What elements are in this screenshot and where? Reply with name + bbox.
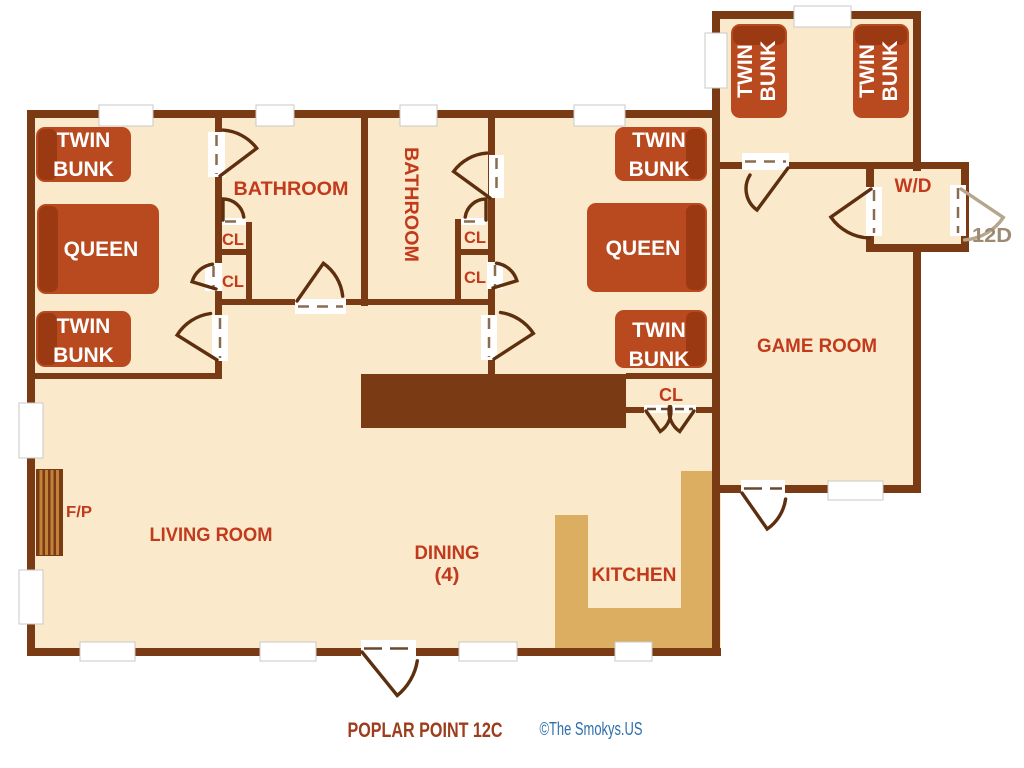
svg-text:DINING: DINING	[415, 543, 480, 564]
svg-text:BUNK: BUNK	[53, 344, 114, 367]
svg-text:(4): (4)	[435, 565, 460, 586]
svg-text:CL: CL	[464, 228, 486, 247]
svg-text:BATHROOM: BATHROOM	[234, 179, 349, 200]
svg-text:LIVING ROOM: LIVING ROOM	[150, 525, 273, 546]
svg-text:BUNK: BUNK	[629, 348, 690, 371]
svg-text:QUEEN: QUEEN	[64, 238, 139, 261]
svg-text:TWIN: TWIN	[57, 129, 111, 152]
svg-text:BATHROOM: BATHROOM	[400, 147, 421, 262]
svg-text:TWIN: TWIN	[57, 315, 111, 338]
svg-text:CL: CL	[659, 385, 683, 405]
svg-text:QUEEN: QUEEN	[606, 237, 681, 260]
svg-text:BUNK: BUNK	[53, 158, 114, 181]
svg-text:CL: CL	[222, 272, 244, 291]
svg-text:POPLAR POINT 12C: POPLAR POINT 12C	[348, 719, 503, 742]
svg-text:GAME ROOM: GAME ROOM	[757, 336, 877, 357]
svg-text:F/P: F/P	[66, 504, 92, 521]
svg-text:TWIN: TWIN	[734, 44, 757, 98]
svg-text:TWIN: TWIN	[632, 319, 686, 342]
svg-text:BUNK: BUNK	[629, 158, 690, 181]
svg-text:CL: CL	[222, 230, 244, 249]
svg-text:TWIN: TWIN	[856, 44, 879, 98]
svg-text:KITCHEN: KITCHEN	[592, 565, 677, 586]
svg-text:CL: CL	[464, 268, 486, 287]
svg-text:©The Smokys.US: ©The Smokys.US	[540, 719, 643, 739]
svg-text:12D: 12D	[972, 225, 1012, 247]
svg-text:TWIN: TWIN	[632, 129, 686, 152]
svg-text:BUNK: BUNK	[879, 41, 902, 102]
svg-text:BUNK: BUNK	[757, 41, 780, 102]
svg-text:W/D: W/D	[895, 176, 932, 197]
